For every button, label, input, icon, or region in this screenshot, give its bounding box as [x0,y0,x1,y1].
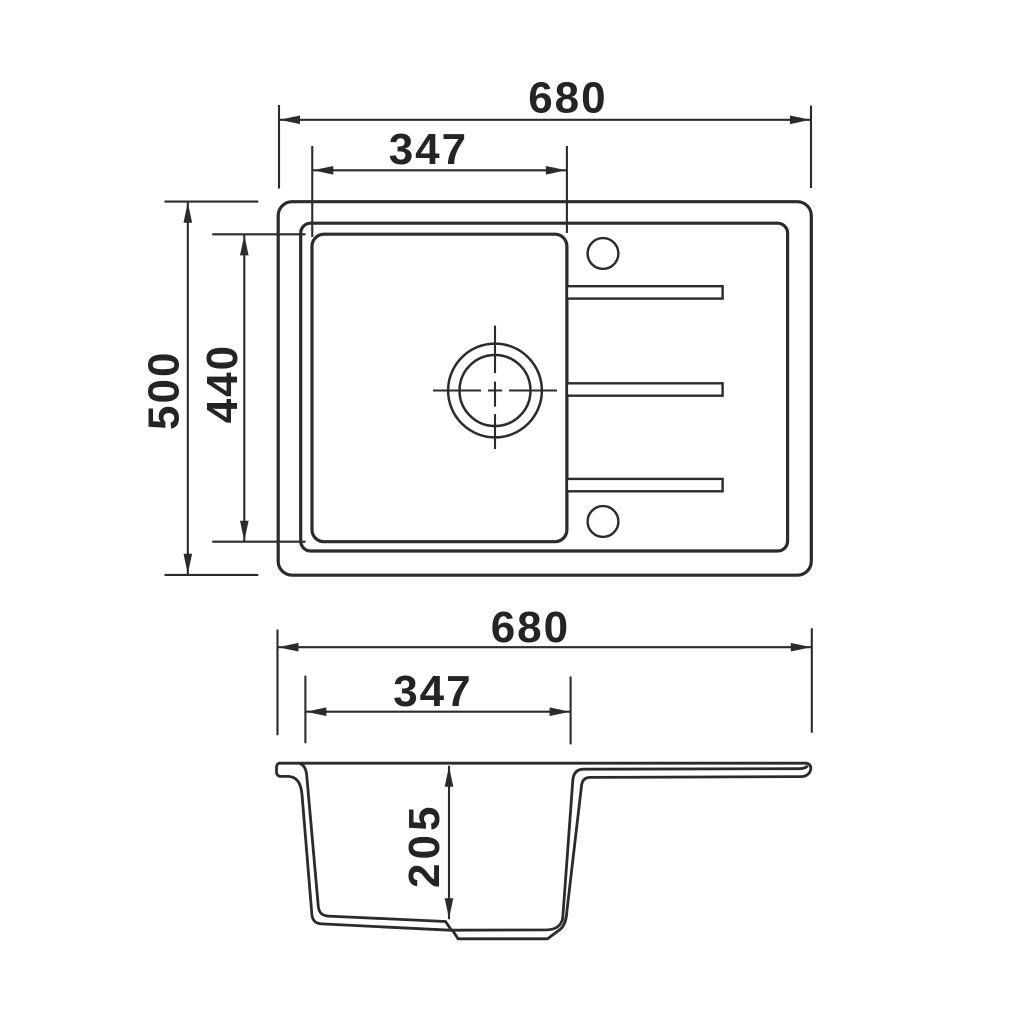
svg-text:347: 347 [393,667,472,716]
svg-text:440: 440 [198,344,247,423]
svg-text:680: 680 [528,73,607,122]
svg-text:205: 205 [400,803,449,888]
svg-text:680: 680 [491,603,570,652]
svg-text:347: 347 [389,125,468,174]
svg-text:500: 500 [139,351,188,430]
